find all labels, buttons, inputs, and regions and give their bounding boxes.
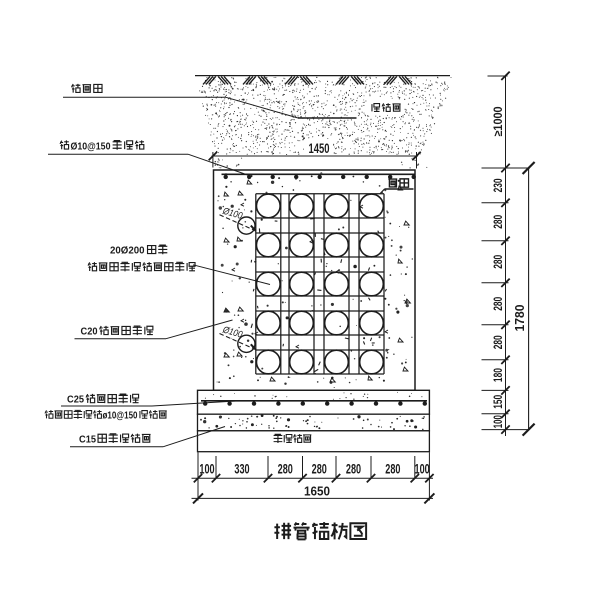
svg-text:230: 230 (491, 178, 505, 192)
svg-text:280: 280 (312, 461, 327, 477)
svg-text:1780: 1780 (513, 304, 527, 331)
svg-text:20Ø200: 20Ø200 (110, 245, 145, 257)
svg-text:280: 280 (491, 255, 505, 269)
svg-text:280: 280 (346, 461, 361, 477)
svg-text:280: 280 (491, 297, 505, 311)
svg-text:C20: C20 (81, 325, 98, 337)
svg-text:1450: 1450 (309, 141, 330, 156)
svg-text:100: 100 (199, 461, 214, 477)
svg-text:330: 330 (234, 461, 249, 477)
svg-text:C15: C15 (79, 433, 96, 445)
svg-text:Ø10@150: Ø10@150 (71, 140, 111, 152)
svg-text:180: 180 (491, 368, 505, 382)
svg-text:280: 280 (491, 215, 505, 229)
svg-text:280: 280 (385, 461, 400, 477)
svg-text:1650: 1650 (304, 483, 330, 498)
svg-text:100: 100 (491, 415, 505, 428)
svg-text:280: 280 (491, 335, 505, 349)
svg-text:C25: C25 (67, 394, 84, 406)
svg-text:280: 280 (278, 461, 293, 477)
svg-text:100: 100 (415, 461, 430, 477)
svg-text:150: 150 (491, 395, 505, 409)
svg-text:≥1000: ≥1000 (491, 106, 505, 136)
svg-text:ø10@150: ø10@150 (103, 411, 138, 422)
